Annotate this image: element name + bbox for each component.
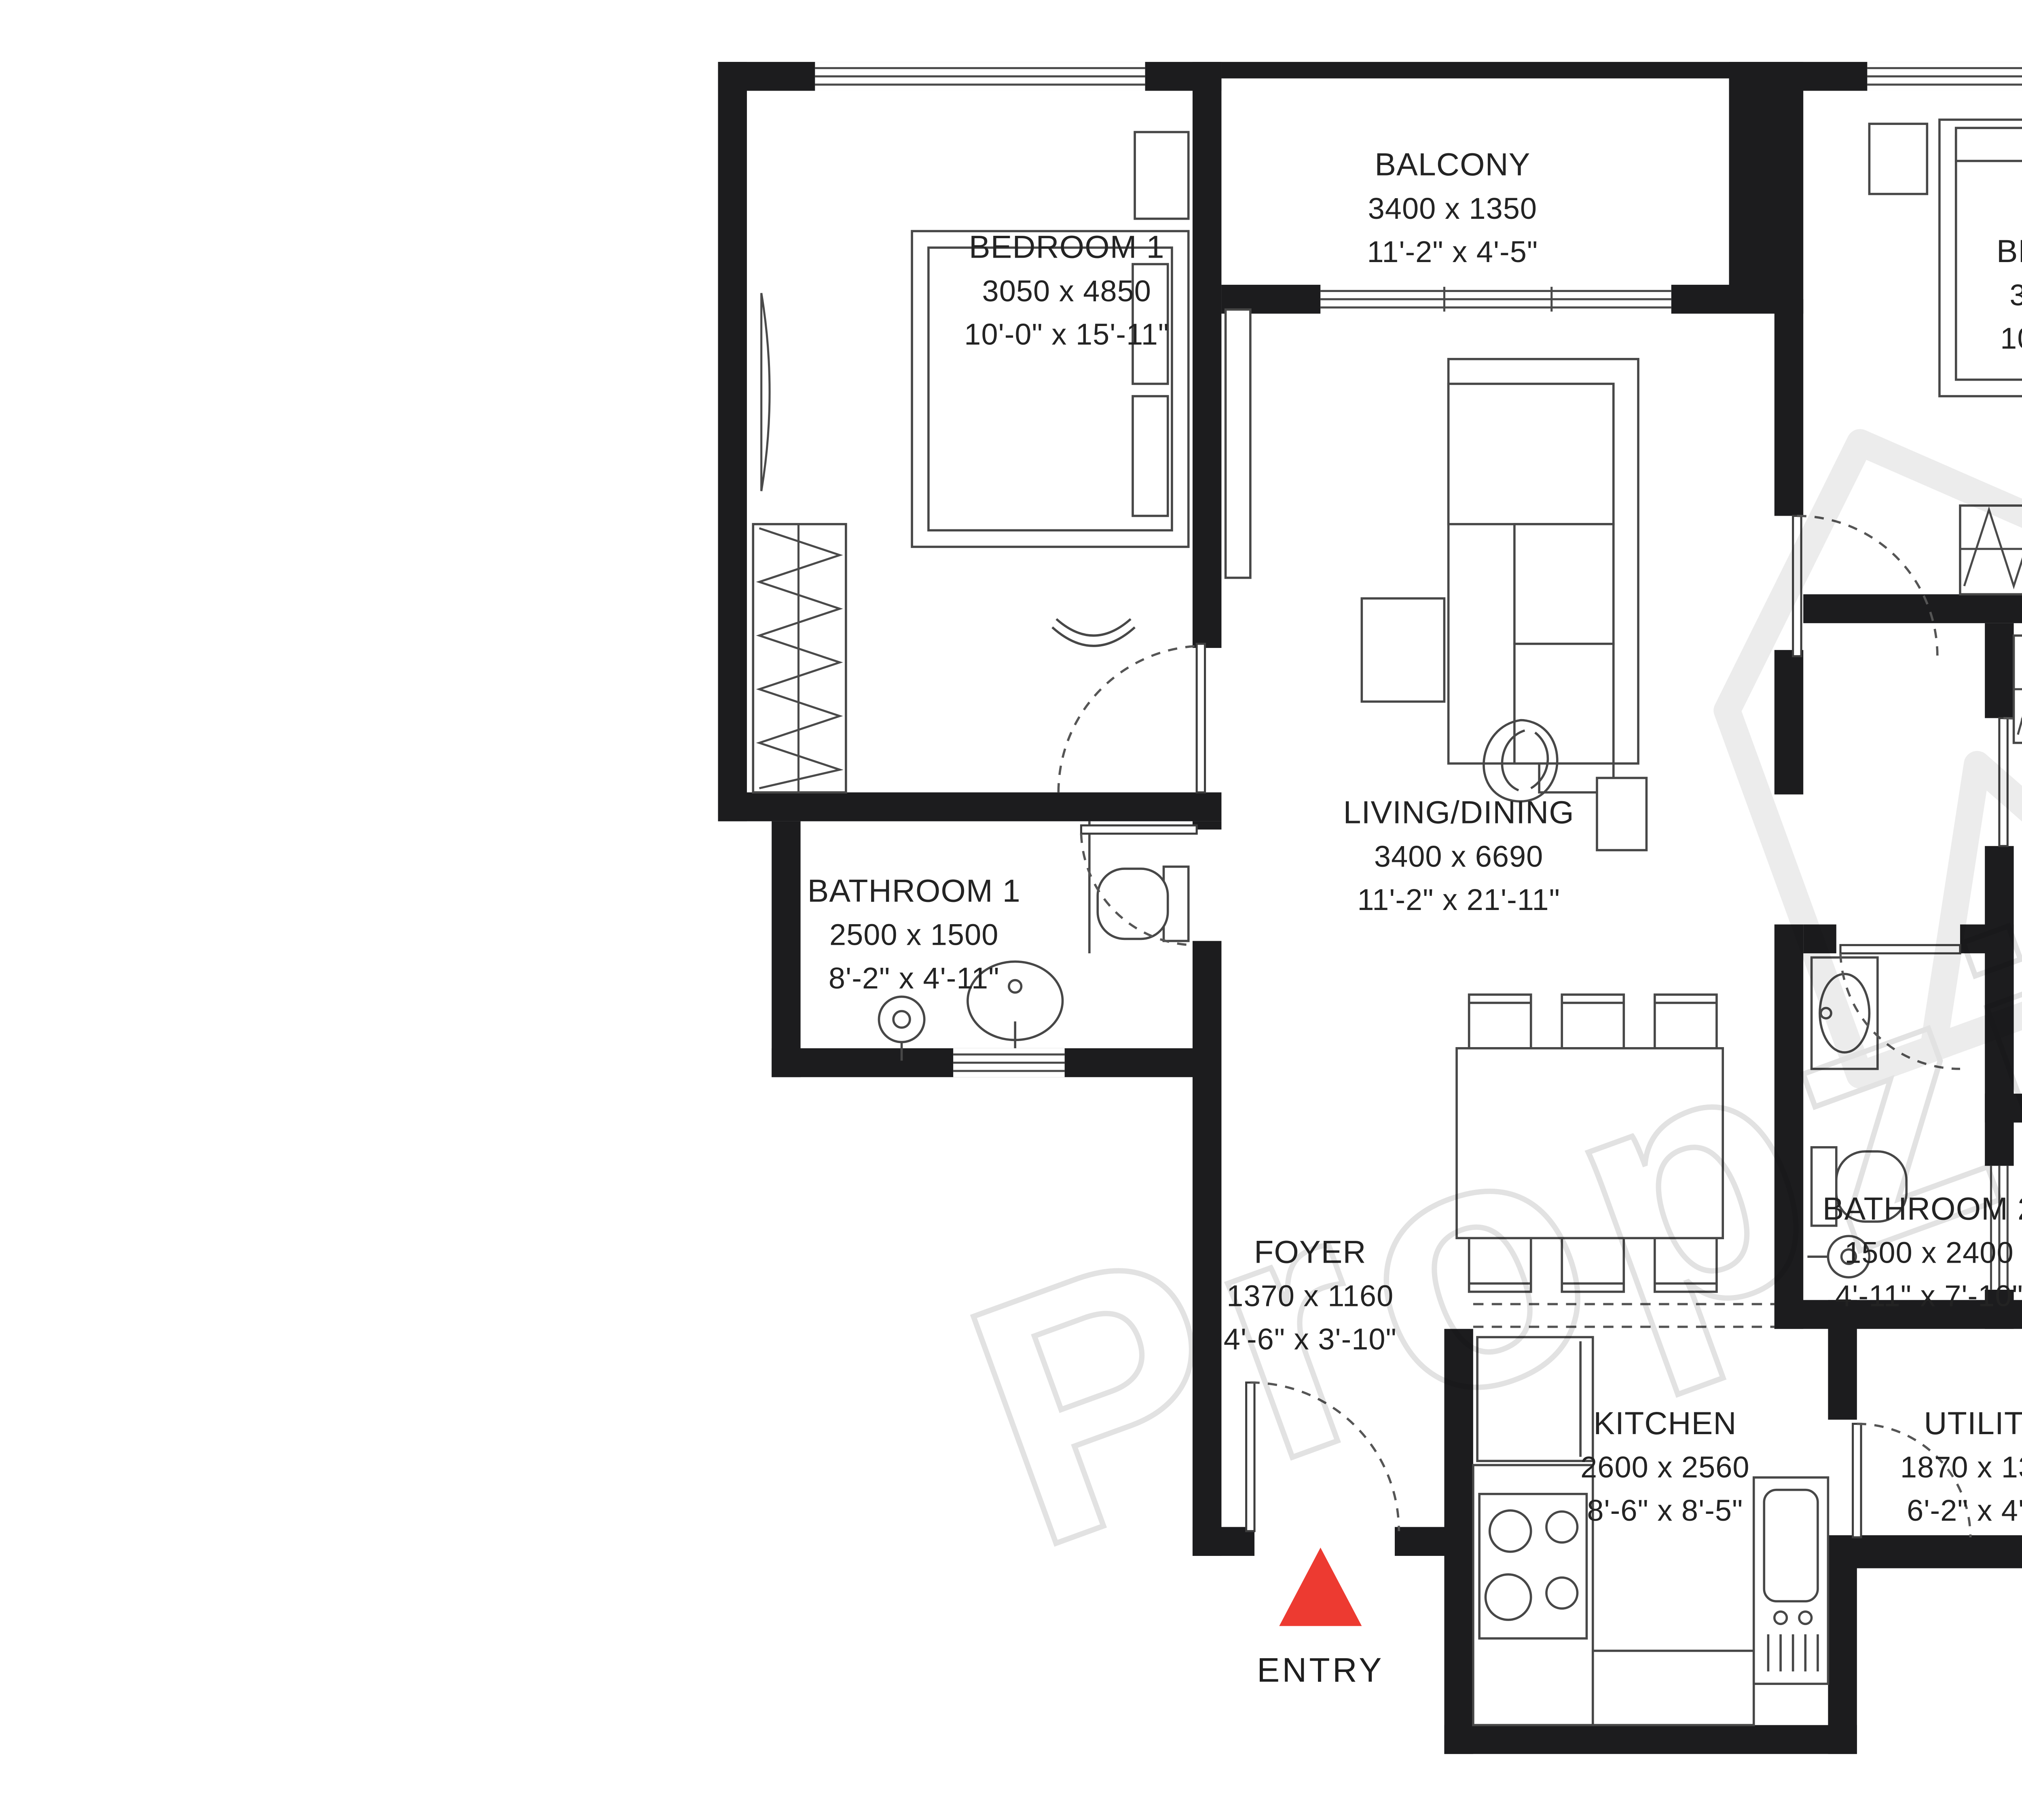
label-utility: UTILITY 1870 x 1350 6'-2" x 4'-5" <box>1900 1405 2022 1527</box>
label-bedroom1: BEDROOM 1 3050 x 4850 10'-0" x 15'-11" <box>964 229 1169 351</box>
room-size-ft: 11'-2" x 4'-5" <box>1367 235 1538 269</box>
room-title: BEDROOM 2 <box>1997 233 2022 269</box>
tv-console-icon <box>1226 309 1250 578</box>
room-size-mm: 1870 x 1350 <box>1900 1450 2022 1484</box>
window-bedroom1-top <box>815 62 1145 91</box>
entry-marker: ENTRY <box>1257 1548 1384 1689</box>
room-size-mm: 2600 x 2560 <box>1580 1450 1749 1484</box>
nightstand-icon <box>1135 132 1189 219</box>
balcony-sliding-door <box>1320 285 1671 313</box>
entry-arrow-icon <box>1279 1548 1362 1626</box>
floor-plan-page: BEDROOM 1 3050 x 4850 10'-0" x 15'-11" B… <box>0 0 2022 1820</box>
label-kitchen: KITCHEN 2600 x 2560 8'-6" x 8'-5" <box>1580 1405 1749 1527</box>
room-size-mm: 3400 x 1350 <box>1368 192 1537 225</box>
room-size-ft: 10'-0" x 11'-8" <box>2000 322 2022 355</box>
room-title: BATHROOM 1 <box>808 873 1021 909</box>
room-size-ft: 8'-2" x 4'-11" <box>829 961 1000 995</box>
room-size-mm: 2500 x 1500 <box>829 918 998 952</box>
nightstand-icon <box>1869 124 1927 194</box>
label-balcony: BALCONY 3400 x 1350 11'-2" x 4'-5" <box>1367 146 1538 269</box>
label-living-dining: LIVING/DINING 3400 x 6690 11'-2" x 21'-1… <box>1343 794 1574 916</box>
ottoman-icon <box>1597 778 1646 850</box>
window-bathroom1-bottom <box>953 1048 1065 1077</box>
side-table-icon <box>1362 599 1444 702</box>
floor-plan: BEDROOM 1 3050 x 4850 10'-0" x 15'-11" B… <box>0 0 2022 1820</box>
room-title: LIVING/DINING <box>1343 794 1574 830</box>
room-title: BALCONY <box>1375 146 1530 182</box>
room-size-ft: 6'-2" x 4'-5" <box>1907 1494 2022 1527</box>
window-bedroom2-top <box>1867 62 2022 91</box>
wardrobe-icon <box>753 524 846 792</box>
room-size-mm: 3050 x 4850 <box>982 274 1151 308</box>
label-bathroom1: BATHROOM 1 2500 x 1500 8'-2" x 4'-11" <box>808 873 1021 995</box>
door-bedroom1 <box>1058 644 1205 792</box>
entry-label: ENTRY <box>1257 1651 1384 1689</box>
wardrobe-icon <box>2014 635 2022 743</box>
room-size-ft: 8'-6" x 8'-5" <box>1587 1494 1743 1527</box>
room-title: BEDROOM 1 <box>969 229 1165 265</box>
room-size-mm: 3400 x 6690 <box>1374 840 1543 873</box>
room-size-ft: 11'-2" x 21'-11" <box>1357 883 1560 916</box>
room-size-mm: 3050 x 3550 <box>2009 278 2022 312</box>
sink-icon <box>1754 1477 1828 1684</box>
hob-icon <box>1479 1494 1586 1638</box>
room-title: UTILITY <box>1924 1405 2022 1441</box>
toilet-icon <box>1089 821 1189 954</box>
window-bedroom1-left-curtain <box>761 293 770 491</box>
room-size-ft: 10'-0" x 15'-11" <box>964 317 1169 351</box>
desk-chair-icon <box>1052 619 1135 646</box>
